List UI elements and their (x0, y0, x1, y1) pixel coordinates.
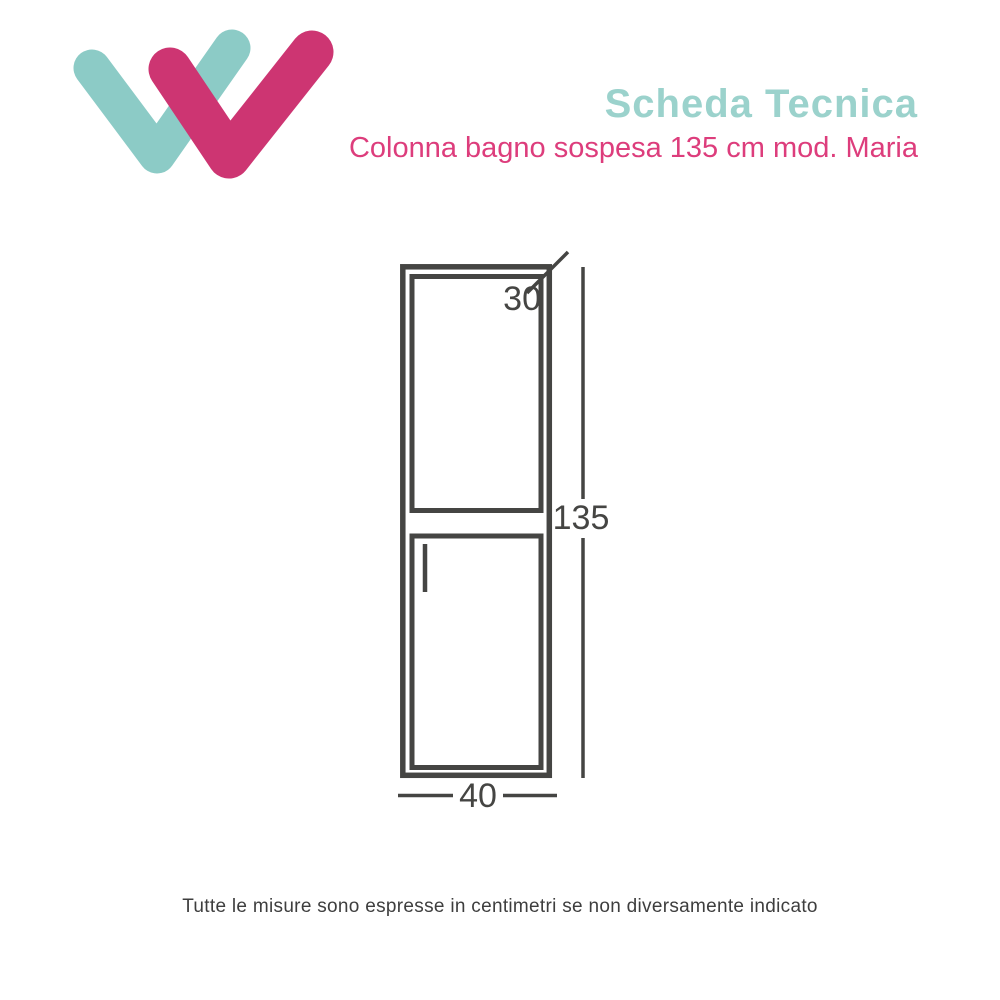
width-dimension-label: 40 (459, 777, 497, 815)
cabinet-bottom-door (412, 536, 541, 768)
depth-dimension-label: 30 (503, 280, 541, 318)
technical-drawing: 30 135 40 (0, 0, 1000, 1000)
footer-note: Tutte le misure sono espresse in centime… (0, 896, 1000, 918)
cabinet-outline (403, 267, 550, 776)
height-dimension-label: 135 (553, 499, 610, 537)
